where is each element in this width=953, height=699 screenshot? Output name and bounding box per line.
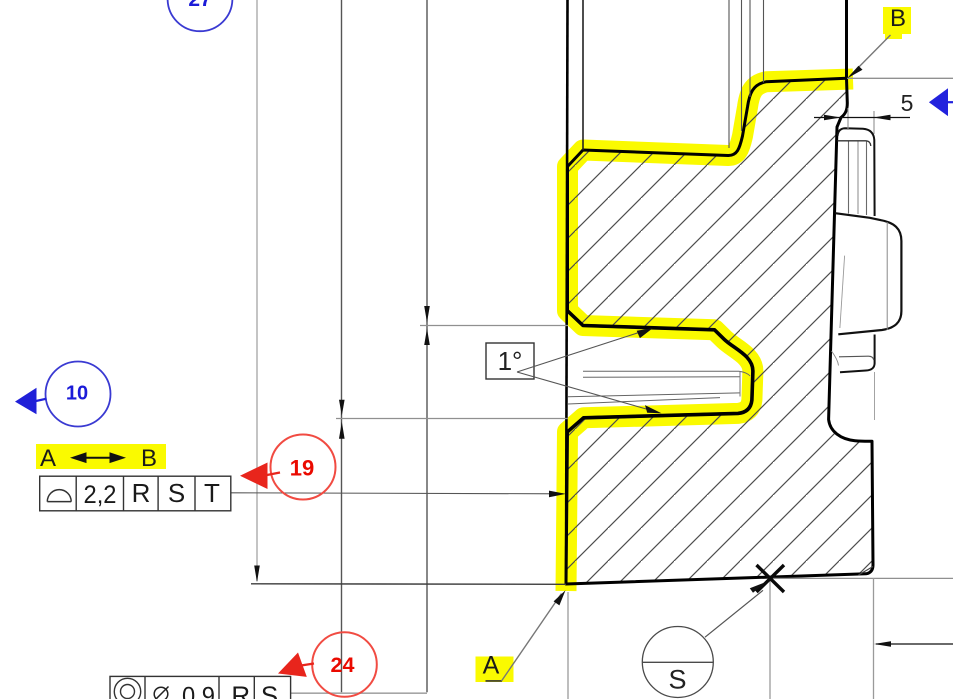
svg-text:S: S — [168, 478, 185, 508]
svg-text:S: S — [261, 681, 278, 699]
svg-text:5: 5 — [901, 90, 914, 116]
svg-text:2,2: 2,2 — [84, 481, 117, 509]
svg-text:24: 24 — [331, 653, 355, 677]
svg-text:19: 19 — [290, 455, 314, 480]
svg-text:27: 27 — [188, 0, 211, 11]
svg-text:R: R — [231, 681, 250, 699]
svg-text:A: A — [483, 652, 500, 680]
svg-text:10: 10 — [66, 383, 88, 405]
svg-text:S: S — [668, 664, 686, 694]
svg-text:B: B — [890, 5, 906, 32]
svg-text:0,9: 0,9 — [182, 683, 215, 699]
svg-text:R: R — [132, 478, 151, 508]
svg-text:T: T — [204, 478, 220, 508]
svg-text:A: A — [40, 445, 56, 472]
svg-text:B: B — [141, 445, 157, 472]
